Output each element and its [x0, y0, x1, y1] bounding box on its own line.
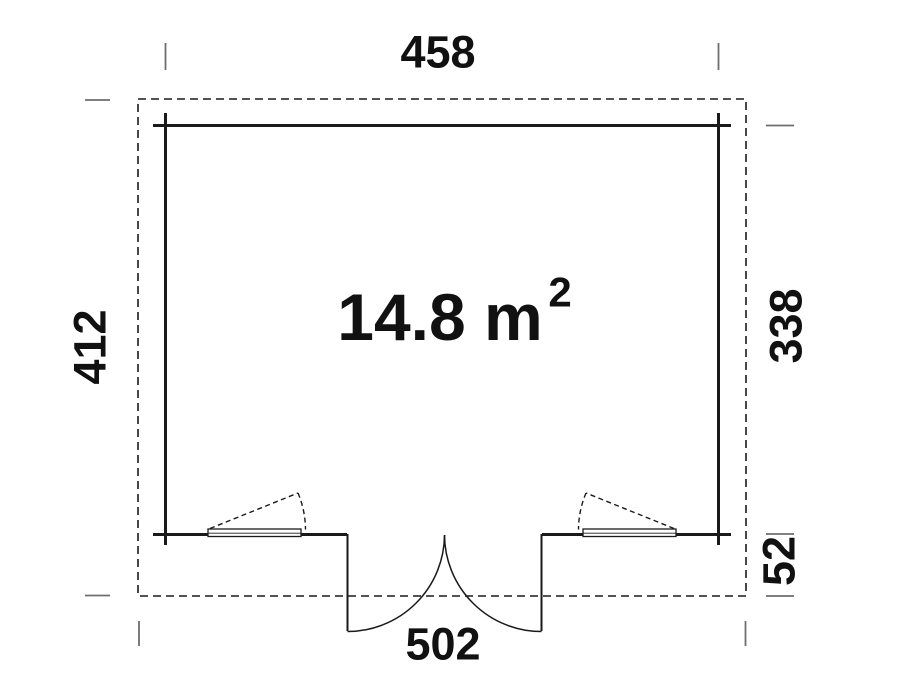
area-value: 14.8 m	[337, 280, 542, 354]
dimension-bottom-label: 502	[405, 619, 480, 670]
window-left-sash	[210, 493, 298, 529]
dimension-right-label: 338	[761, 288, 812, 363]
window-right	[579, 493, 677, 537]
dimension-top-label: 458	[400, 27, 475, 78]
window-left	[208, 493, 306, 537]
door-swing-arc-right	[445, 535, 542, 632]
floor-plan-diagram: 458 412 338 52 502 14.8 m 2	[0, 0, 900, 692]
double-door	[348, 534, 542, 632]
area-superscript: 2	[548, 269, 571, 316]
door-swing-arc-left	[348, 535, 445, 632]
area-label-group: 14.8 m 2	[337, 269, 571, 355]
floor-plan-canvas: 458 412 338 52 502 14.8 m 2	[0, 0, 900, 692]
window-right-swing-arc	[579, 493, 587, 530]
dimension-left-label: 412	[65, 309, 116, 384]
dimension-overhang-label: 52	[754, 536, 805, 586]
window-left-swing-arc	[298, 493, 306, 530]
window-right-sash	[586, 493, 674, 529]
